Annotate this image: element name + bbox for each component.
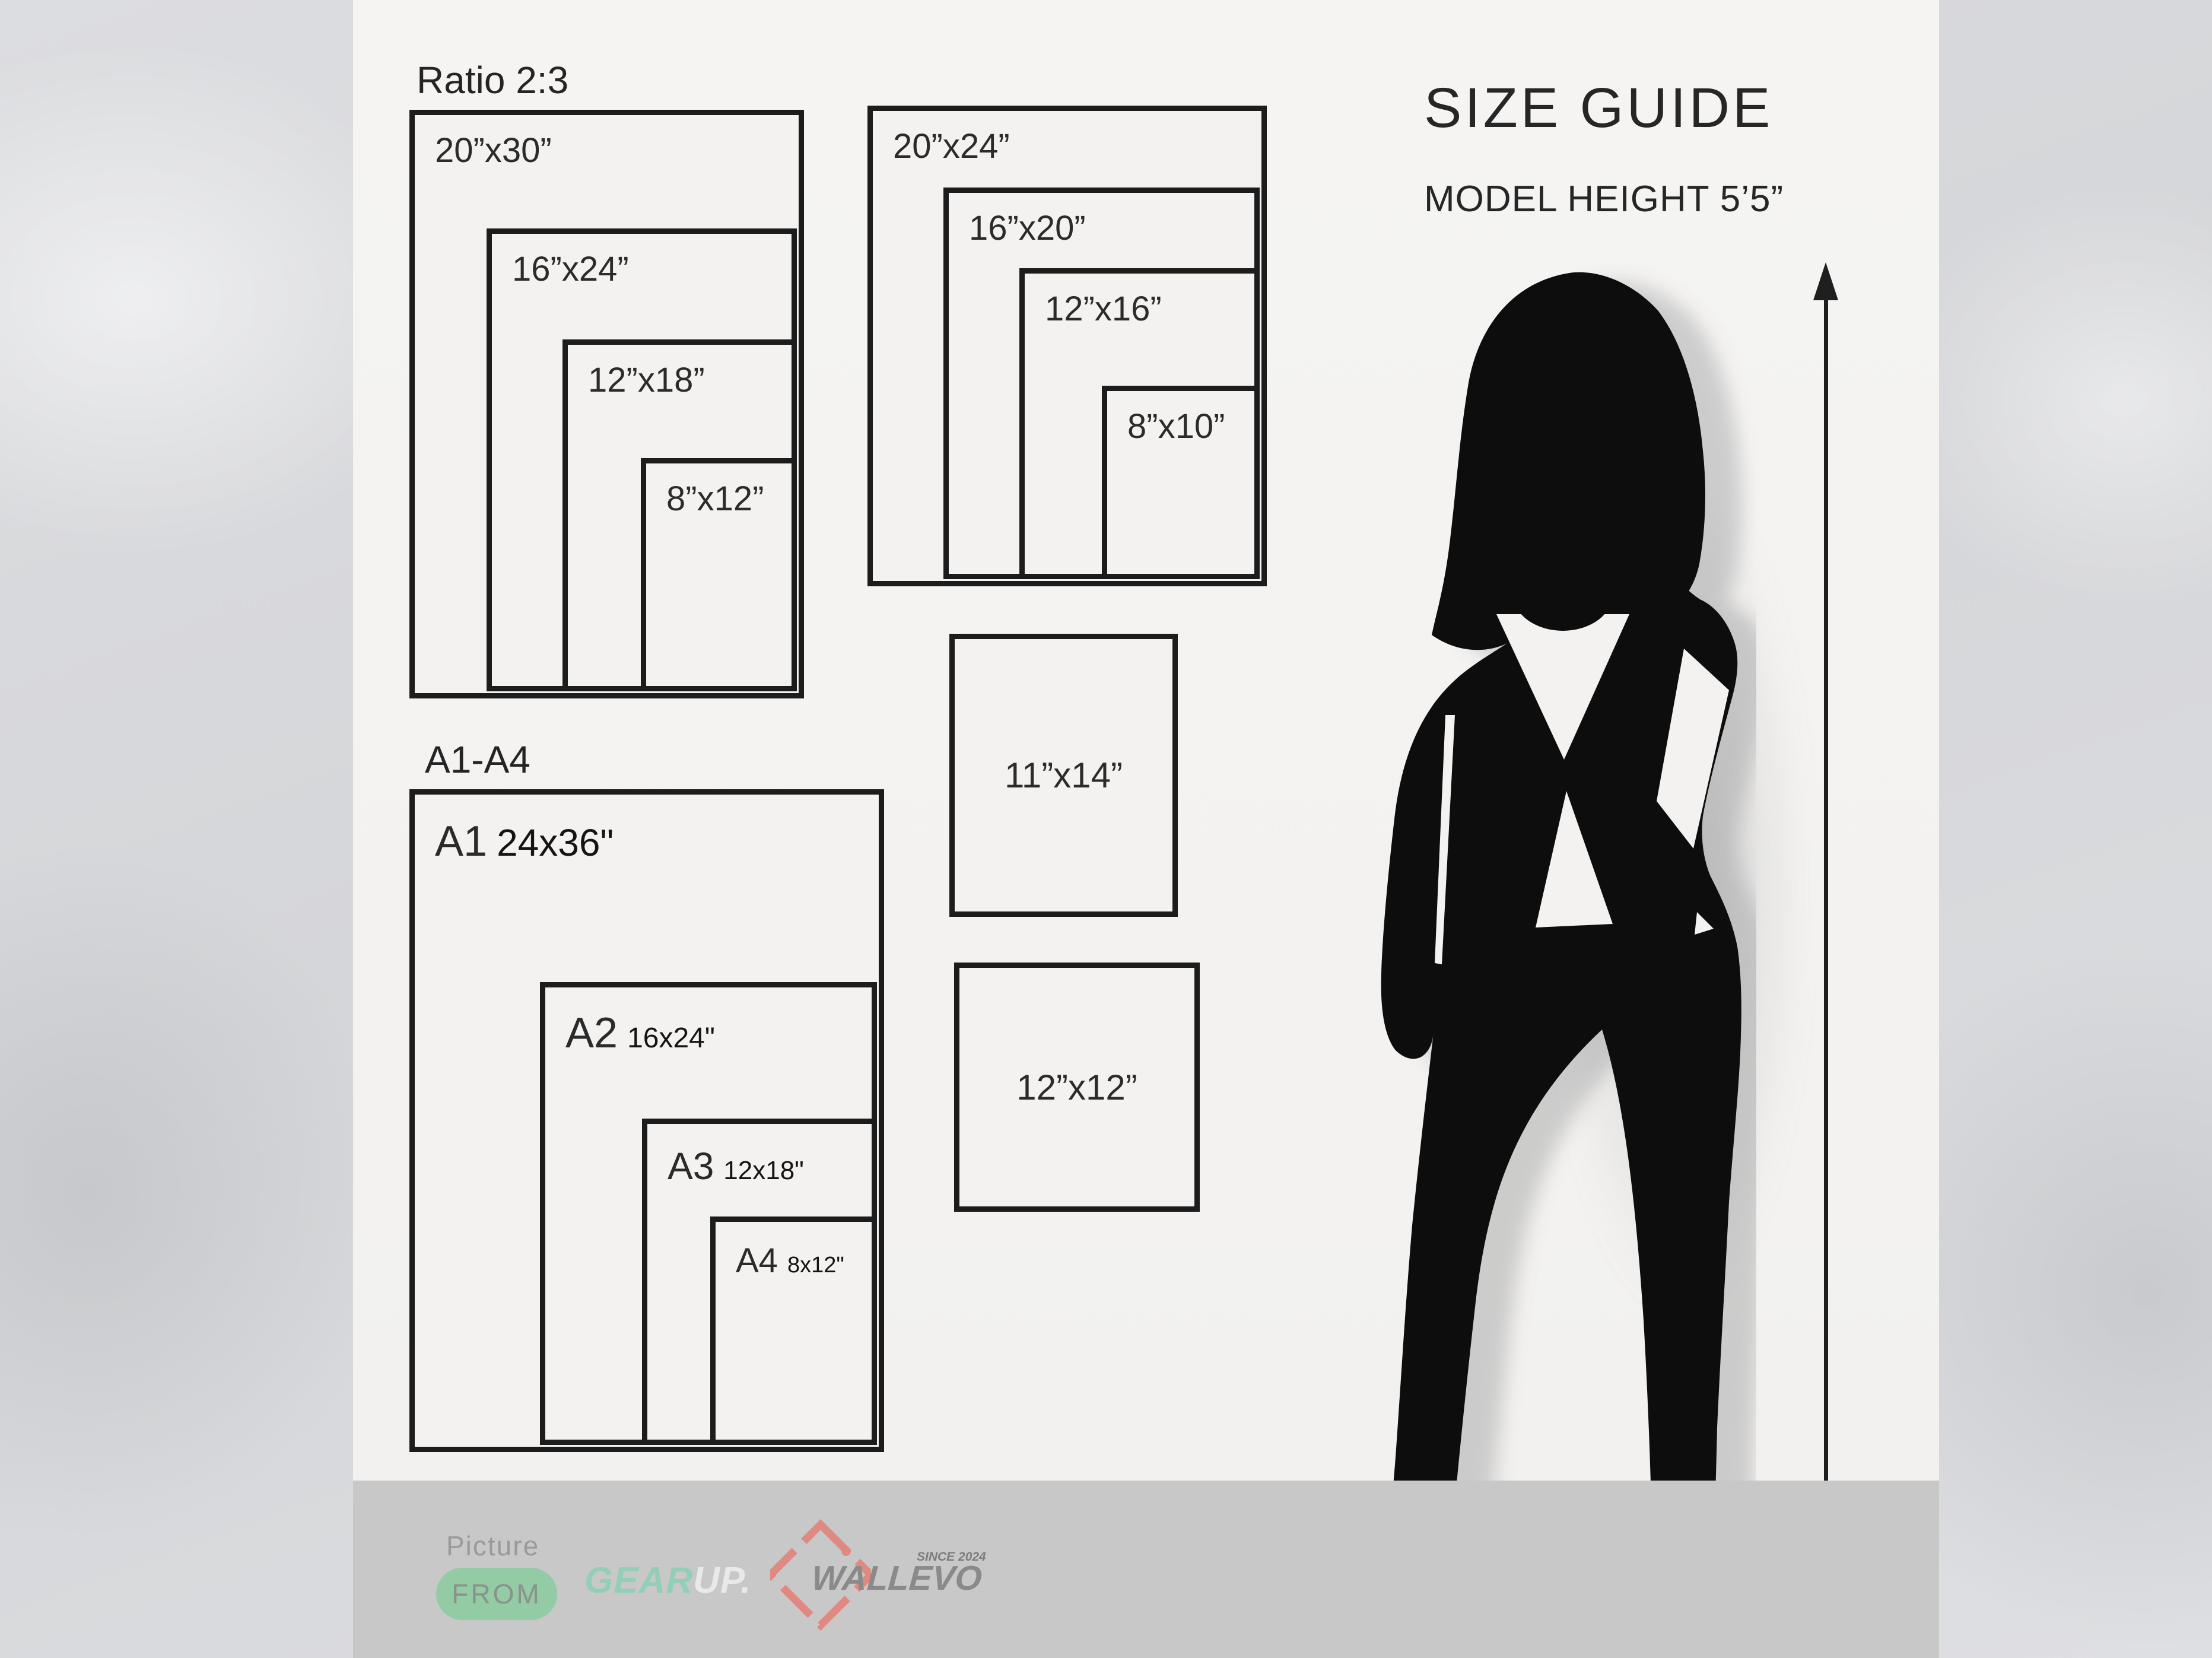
size-label-8x10: 8”x10” bbox=[1127, 406, 1225, 446]
size-label-12x12: 12”x12” bbox=[1016, 1067, 1137, 1108]
from-badge-label: FROM bbox=[452, 1578, 541, 1610]
size-label-a4: A4 8x12" bbox=[736, 1241, 844, 1281]
size-box-11x14: 11”x14” bbox=[949, 634, 1178, 917]
a-series-title: A1-A4 bbox=[425, 738, 530, 782]
size-label-12x18: 12”x18” bbox=[588, 360, 705, 400]
from-badge: FROM bbox=[436, 1568, 557, 1620]
size-label-a2: A2 16x24" bbox=[565, 1009, 715, 1057]
size-guide-poster: Ratio 2:3 20”x30” 16”x24” 12”x18” 8”x12”… bbox=[0, 0, 2212, 1658]
gearup-logo: GEARUP. bbox=[584, 1559, 752, 1602]
size-label-12x16: 12”x16” bbox=[1045, 289, 1162, 329]
page-title: SIZE GUIDE bbox=[1424, 76, 1773, 141]
size-label-a1: A1 24x36" bbox=[435, 817, 614, 866]
size-label-16x20: 16”x20” bbox=[969, 208, 1086, 248]
silhouette-figure bbox=[1381, 272, 1741, 1564]
ratio-group-title: Ratio 2:3 bbox=[417, 58, 568, 102]
size-label-a3: A3 12x18" bbox=[668, 1144, 804, 1188]
size-label-11x14: 11”x14” bbox=[1005, 755, 1123, 796]
size-label-8x12: 8”x12” bbox=[666, 479, 764, 519]
height-arrow bbox=[1824, 296, 1828, 1513]
size-box-8x12: 8”x12” bbox=[641, 458, 797, 691]
picture-label: Picture bbox=[446, 1530, 539, 1562]
wallevo-since-label: SINCE 2024 bbox=[917, 1550, 986, 1564]
size-label-20x24: 20”x24” bbox=[893, 126, 1010, 166]
arrow-up-icon bbox=[1813, 262, 1838, 300]
gearup-logo-up: UP. bbox=[693, 1560, 751, 1601]
size-box-a4: A4 8x12" bbox=[710, 1216, 877, 1445]
size-box-8x10: 8”x10” bbox=[1102, 386, 1260, 579]
model-silhouette bbox=[1317, 264, 1756, 1564]
size-label-20x30: 20”x30” bbox=[435, 131, 552, 170]
wallevo-logo: WALLEVO bbox=[811, 1558, 983, 1598]
size-box-12x12: 12”x12” bbox=[954, 963, 1200, 1212]
size-label-16x24: 16”x24” bbox=[512, 249, 629, 289]
model-height-label: MODEL HEIGHT 5’5” bbox=[1424, 178, 1784, 220]
gearup-logo-gear: GEAR bbox=[584, 1560, 693, 1601]
